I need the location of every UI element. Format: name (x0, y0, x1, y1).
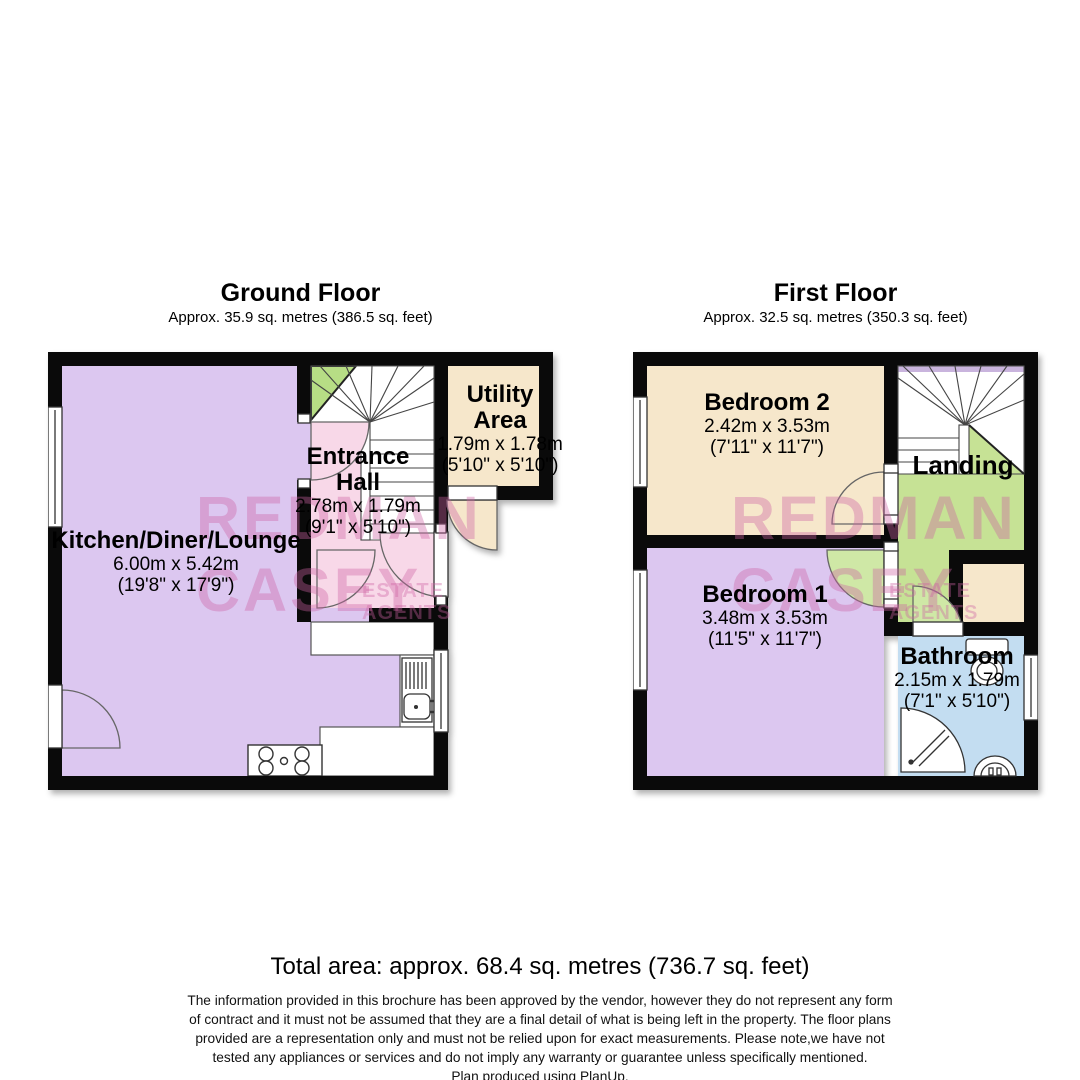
bedroom1-window (633, 570, 647, 690)
disclaimer-line: provided are a representation only and m… (0, 1029, 1080, 1048)
hob-icon (248, 745, 322, 776)
first-floor-section: First Floor Approx. 32.5 sq. metres (350… (633, 278, 1038, 790)
footer: Total area: approx. 68.4 sq. metres (736… (0, 952, 1080, 1080)
disclaimer-line: Plan produced using PlanUp. (0, 1067, 1080, 1080)
room-label-utility-area: Utility Area 1.79m x 1.78m (5'10" x 5'10… (425, 382, 575, 476)
first-floor-plan: REDMAN CASEY ESTATE AGENTS Bedroom 2 2.4… (633, 352, 1038, 790)
disclaimer-line: of contract and it must not be assumed t… (0, 1010, 1080, 1029)
first-floor-subtitle: Approx. 32.5 sq. metres (350.3 sq. feet) (633, 308, 1038, 328)
ground-floor-section: Ground Floor Approx. 35.9 sq. metres (38… (48, 278, 553, 790)
utility-door-gap (448, 486, 497, 500)
room-label-kitchen-diner-lounge: Kitchen/Diner/Lounge 6.00m x 5.42m (19'8… (51, 528, 300, 596)
ground-floor-subtitle: Approx. 35.9 sq. metres (386.5 sq. feet) (48, 308, 553, 328)
utility-back-door-arc (447, 500, 497, 550)
room-label-entrance-hall: Entrance Hall 2.78m x 1.79m (9'1" x 5'10… (283, 444, 433, 538)
bathroom-door-leaf (913, 622, 963, 636)
room-label-bedroom-1: Bedroom 1 3.48m x 3.53m (11'5" x 11'7") (702, 582, 828, 650)
disclaimer-line: The information provided in this brochur… (0, 991, 1080, 1010)
floorplan-page: Ground Floor Approx. 35.9 sq. metres (38… (0, 0, 1080, 1080)
first-floor-title: First Floor (633, 278, 1038, 308)
sink-icon (402, 658, 438, 722)
lounge-window (48, 407, 62, 527)
disclaimer: The information provided in this brochur… (0, 991, 1080, 1080)
ground-floor-plan: REDMAN CASEY ESTATE AGENTS Kitchen/Diner… (48, 352, 553, 790)
total-area-text: Total area: approx. 68.4 sq. metres (736… (0, 952, 1080, 982)
side-door-frame (48, 685, 62, 748)
first-floor-svg (633, 352, 1038, 790)
bedroom2-window (633, 397, 647, 487)
disclaimer-line: tested any appliances or services and do… (0, 1048, 1080, 1067)
bathroom-window (1024, 655, 1038, 720)
ground-floor-title: Ground Floor (48, 278, 553, 308)
room-label-bathroom: Bathroom 2.15m x 1.79m (7'1" x 5'10") (894, 644, 1020, 712)
front-door-leaf (434, 532, 448, 597)
room-label-landing: Landing (912, 452, 1013, 478)
kitchen-window (434, 650, 448, 732)
room-label-bedroom-2: Bedroom 2 2.42m x 3.53m (7'11" x 11'7") (704, 390, 830, 458)
